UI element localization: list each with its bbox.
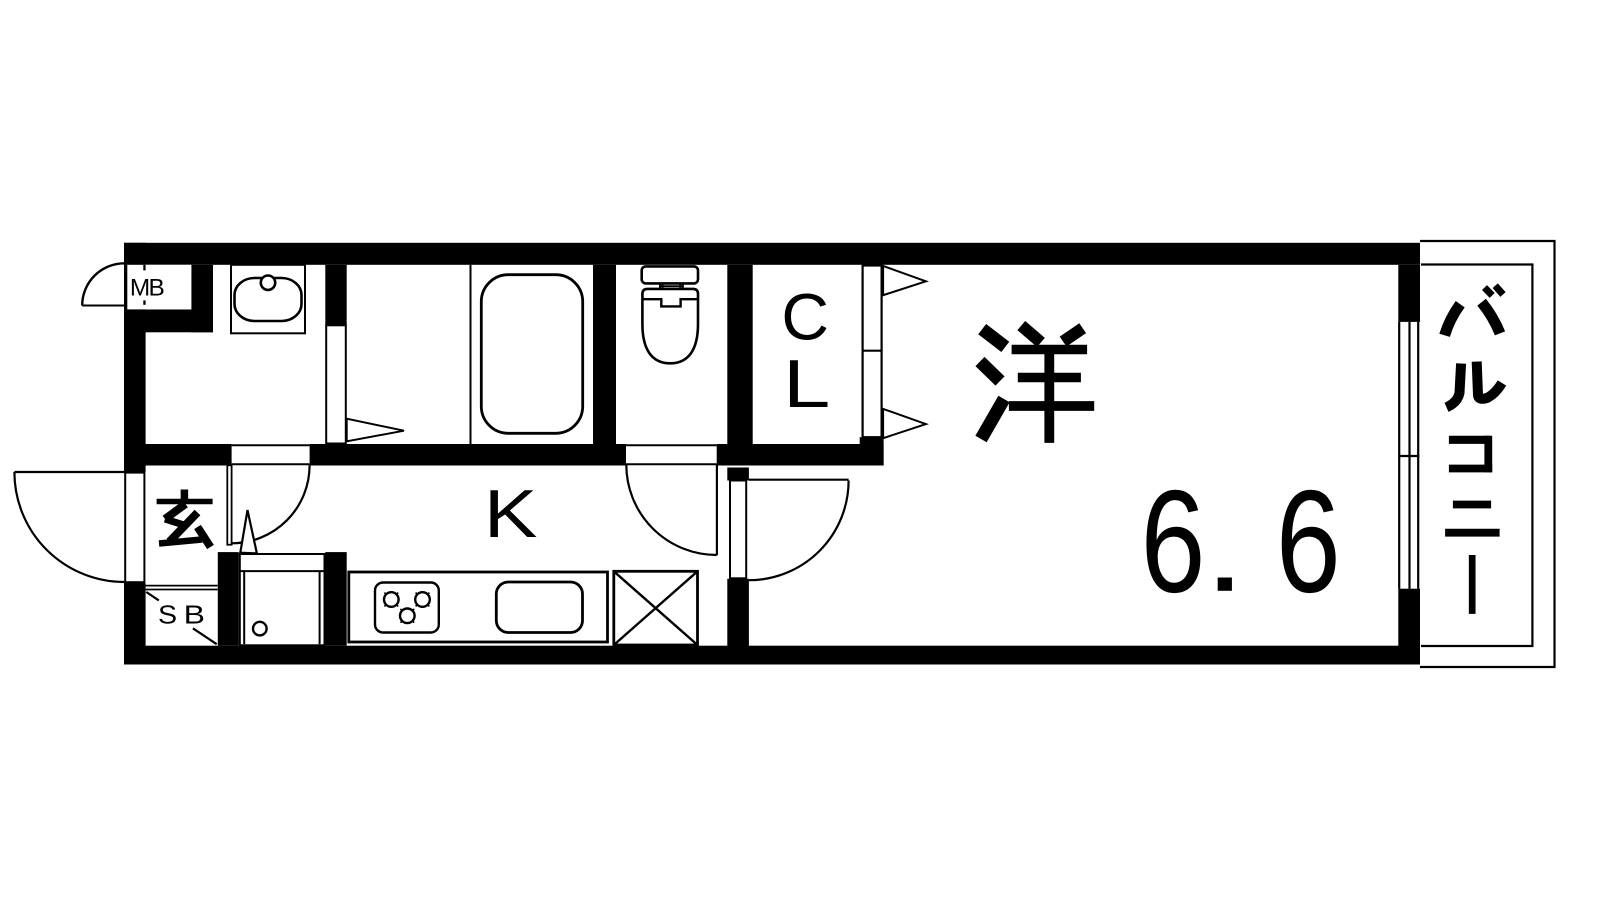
- svg-text:B: B: [184, 602, 205, 630]
- svg-text:M: M: [130, 274, 150, 301]
- svg-text:6: 6: [1141, 460, 1206, 623]
- svg-text:C: C: [781, 280, 829, 354]
- svg-text:K: K: [484, 476, 538, 552]
- svg-text:S: S: [158, 600, 177, 629]
- svg-text:6: 6: [1276, 460, 1341, 623]
- svg-text:L: L: [783, 347, 830, 422]
- svg-text:B: B: [149, 274, 165, 301]
